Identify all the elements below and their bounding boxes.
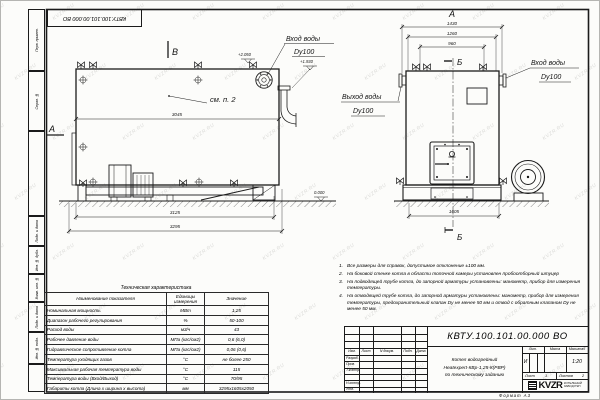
side-section-label: А xyxy=(48,124,55,134)
spec-cell-name: Диапазон рабочего регулирования xyxy=(45,315,167,325)
frame-field-inv-podl: Инв. № подл. xyxy=(28,332,45,364)
spec-cell-unit: мм xyxy=(167,384,205,394)
tb-sheet-value: 1 xyxy=(545,374,547,378)
frame-field-inv-dubl: Инв. № дубл. xyxy=(28,246,45,274)
frame-field-perv-primen: Перв. примен. xyxy=(28,9,45,71)
side-view-label: В xyxy=(172,47,178,57)
elev-zero: 0.000 xyxy=(314,190,325,195)
spec-cell-value: 3295х1605х2050 xyxy=(205,384,269,394)
frame-field-sprav-n: Справ. № xyxy=(28,71,45,131)
product-line-3: по техническому заданию xyxy=(445,372,504,379)
spec-table-title: Техническая характеристика xyxy=(44,285,268,291)
note-item: 4.На отводящей трубе котла, до запорной … xyxy=(335,294,587,313)
front-outlet-dn: Dy100 xyxy=(353,108,373,115)
notes-list: 1.Все размеры для справок, допустимое от… xyxy=(335,264,587,315)
tb-lit-value: И xyxy=(522,359,529,365)
spec-header-value: Значение xyxy=(205,293,269,306)
spec-cell-value: 0,06 (0,6) xyxy=(205,345,269,355)
top-stamp: КВТУ.100.101.00.000 ВО xyxy=(47,9,142,27)
spec-cell-value: 43 xyxy=(205,325,269,335)
spec-cell-name: Расход воды xyxy=(45,325,167,335)
tb-role-tkontr: Т.контр. xyxy=(346,368,360,372)
note-number: 1. xyxy=(335,264,343,270)
spec-cell-unit: % xyxy=(167,315,205,325)
note-number: 2. xyxy=(335,272,343,278)
front-outlet-label: Выход воды xyxy=(342,93,382,101)
frame-field-vzam-inv: Взам. инв. № xyxy=(28,274,45,302)
note-number: 4. xyxy=(335,294,343,313)
spec-cell-name: Температура уходящих газов xyxy=(45,354,167,364)
spec-row: Гидравлическое сопротивление котлаМПа (к… xyxy=(45,345,269,355)
tb-role-nkontr: Н.контр. xyxy=(346,381,361,385)
tb-lit-label: Лит. xyxy=(522,347,544,351)
spec-cell-unit: м3/ч xyxy=(167,325,205,335)
spec-row: Расход водым3/ч43 xyxy=(45,325,269,335)
frame-field-empty-1 xyxy=(28,131,45,216)
dim-3045: 3045 xyxy=(172,112,183,117)
spec-cell-name: Температура воды (Вход/Выход) xyxy=(45,374,167,384)
elev-inlet: +2.050 xyxy=(238,52,252,57)
spec-cell-unit: МПа (кгс/см2) xyxy=(167,335,205,345)
dim-960: 960 xyxy=(448,41,456,46)
spec-cell-value: не более 250 xyxy=(205,354,269,364)
spec-cell-name: Рабочее давление воды xyxy=(45,335,167,345)
doc-number: КВТУ.100.101.00.000 ВО xyxy=(427,327,588,346)
side-view xyxy=(47,41,336,234)
front-inlet-label: Вход воды xyxy=(531,59,566,67)
blower-assembly xyxy=(78,165,275,201)
spec-row: Температура уходящих газов°Сне более 250 xyxy=(45,354,269,364)
frame-field-podp-data-2: Подп. и дата xyxy=(28,302,45,332)
spec-cell-unit: °С xyxy=(167,364,205,374)
elev-outlet: +1.930 xyxy=(300,59,314,64)
dim-1260: 1260 xyxy=(447,31,458,36)
note-text: На отводящей трубе котла, до запорной ар… xyxy=(347,294,587,313)
side-callout: см. п. 2 xyxy=(210,95,236,104)
dim-1430: 1430 xyxy=(447,21,458,26)
company-line-2: ЗАВОД РЭП xyxy=(564,385,582,388)
spec-cell-unit: МПа (кгс/см2) xyxy=(167,345,205,355)
drawing-sheet: KVZR.RUKVZR.RUKVZR.RUKVZR.RUKVZR.RUKVZR.… xyxy=(0,0,600,400)
spec-table: Наименование показателя Единицы измерени… xyxy=(44,292,269,394)
spec-table-body: Номинальная мощностьМВт1,25Диапазон рабо… xyxy=(45,306,269,394)
spec-cell-name: Номинальная мощность xyxy=(45,306,167,316)
spec-cell-name: Максимальная рабочая температура воды xyxy=(45,364,167,374)
note-text: Все размеры для справок, допустимое откл… xyxy=(347,264,587,270)
logo-text: KVZR xyxy=(539,380,563,391)
front-nozzles xyxy=(399,74,506,87)
spec-header-unit: Единицы измерения xyxy=(167,293,205,306)
tb-sheets-label: Листов xyxy=(559,374,573,378)
side-inlet-label: Вход воды xyxy=(286,35,321,43)
spec-cell-name: Гидравлическое сопротивление котла xyxy=(45,345,167,355)
note-item: 2.На боковой стенке котла в области топо… xyxy=(335,272,587,278)
spec-cell-unit: °С xyxy=(167,374,205,384)
tb-role-utv: Утв. xyxy=(346,387,354,391)
inlet-flange-symbol xyxy=(256,72,272,88)
tb-role-prov: Пров. xyxy=(346,362,355,366)
company-logo: KVZR КОТЕЛЬНЫЙ ЗАВОД РЭП xyxy=(522,379,588,391)
furnace-door xyxy=(430,142,474,184)
note-number: 3. xyxy=(335,280,343,293)
tb-col-data: Дата xyxy=(415,349,427,353)
spec-cell-value: 50-100 xyxy=(205,315,269,325)
spec-row: Максимальная рабочая температура воды°С1… xyxy=(45,364,269,374)
spec-row: Температура воды (Вход/Выход)°С70/95 xyxy=(45,374,269,384)
dim-1605: 1605 xyxy=(449,209,460,214)
spec-table-section: Техническая характеристика Наименование … xyxy=(44,285,268,394)
front-inlet-dn: Dy100 xyxy=(541,74,561,81)
dim-3295: 3295 xyxy=(170,224,181,229)
spec-cell-value: 70/95 xyxy=(205,374,269,384)
front-view xyxy=(341,24,579,233)
frame-field-podp-data-1: Подп. и дата xyxy=(28,216,45,246)
top-stamp-text: КВТУ.100.101.00.000 ВО xyxy=(63,15,126,21)
tb-col-dokum: N докум. xyxy=(373,349,401,353)
spec-cell-value: 1,25 xyxy=(205,306,269,316)
inspection-hatch xyxy=(467,88,487,104)
title-block: Изм. Лист N докум. Подп. Дата Разраб. Пр… xyxy=(344,326,589,392)
front-view-label: А xyxy=(448,9,455,19)
spec-cell-unit: МВт xyxy=(167,306,205,316)
tb-sheet-label: Лист xyxy=(525,374,535,378)
dim-3125: 3125 xyxy=(170,210,181,215)
spec-header-row: Наименование показателя Единицы измерени… xyxy=(45,293,269,306)
format-note: Формат А3 xyxy=(499,393,531,398)
tb-mass-label: Масса xyxy=(544,347,566,351)
spec-row: Габариты котла (Длина х ширина х высота)… xyxy=(45,384,269,394)
tb-scale-value: 1:20 xyxy=(566,359,588,365)
outlet-pipe xyxy=(278,86,296,127)
section-label-top: Б xyxy=(457,58,462,67)
spec-row: Рабочее давление водыМПа (кгс/см2)0,6 (6… xyxy=(45,335,269,345)
product-line-2: Heatexpert-КВр-1,25-К(РВР) xyxy=(444,365,506,372)
frame-field-empty-2 xyxy=(28,364,45,392)
spec-row: Диапазон рабочего регулирования%50-100 xyxy=(45,315,269,325)
tb-col-podp: Подп. xyxy=(401,349,415,353)
note-item: 3.На подводящей трубе котла, до запорной… xyxy=(335,280,587,293)
spec-cell-value: 115 xyxy=(205,364,269,374)
side-dimensions xyxy=(67,117,284,234)
fan xyxy=(512,161,545,202)
spec-header-name: Наименование показателя xyxy=(45,293,167,306)
side-inlet-dn: Dy100 xyxy=(294,49,314,56)
front-dimensions xyxy=(400,24,504,219)
note-text: На подводящей трубе котла, до запорной а… xyxy=(347,280,587,293)
product-title: Котел водогрейный Heatexpert-КВр-1,25-К(… xyxy=(427,346,522,391)
note-item: 1.Все размеры для справок, допустимое от… xyxy=(335,264,587,270)
logo-mark-icon xyxy=(528,381,537,390)
spec-cell-unit: °С xyxy=(167,354,205,364)
note-text: На боковой стенке котла в области топочн… xyxy=(347,272,587,278)
product-line-1: Котел водогрейный xyxy=(452,357,498,364)
tb-role-razrab: Разраб. xyxy=(346,356,359,360)
tb-scale-label: Масштаб xyxy=(566,347,588,351)
tb-col-list: Лист xyxy=(359,349,373,353)
spec-cell-value: 0,6 (6,0) xyxy=(205,335,269,345)
tb-sheets-value: 2 xyxy=(582,374,584,378)
company-name: КОТЕЛЬНЫЙ ЗАВОД РЭП xyxy=(564,382,582,389)
tb-col-izm: Изм. xyxy=(345,349,359,353)
spec-row: Номинальная мощностьМВт1,25 xyxy=(45,306,269,316)
section-label-bottom: Б xyxy=(457,233,462,242)
spec-cell-name: Габариты котла (Длина х ширина х высота) xyxy=(45,384,167,394)
